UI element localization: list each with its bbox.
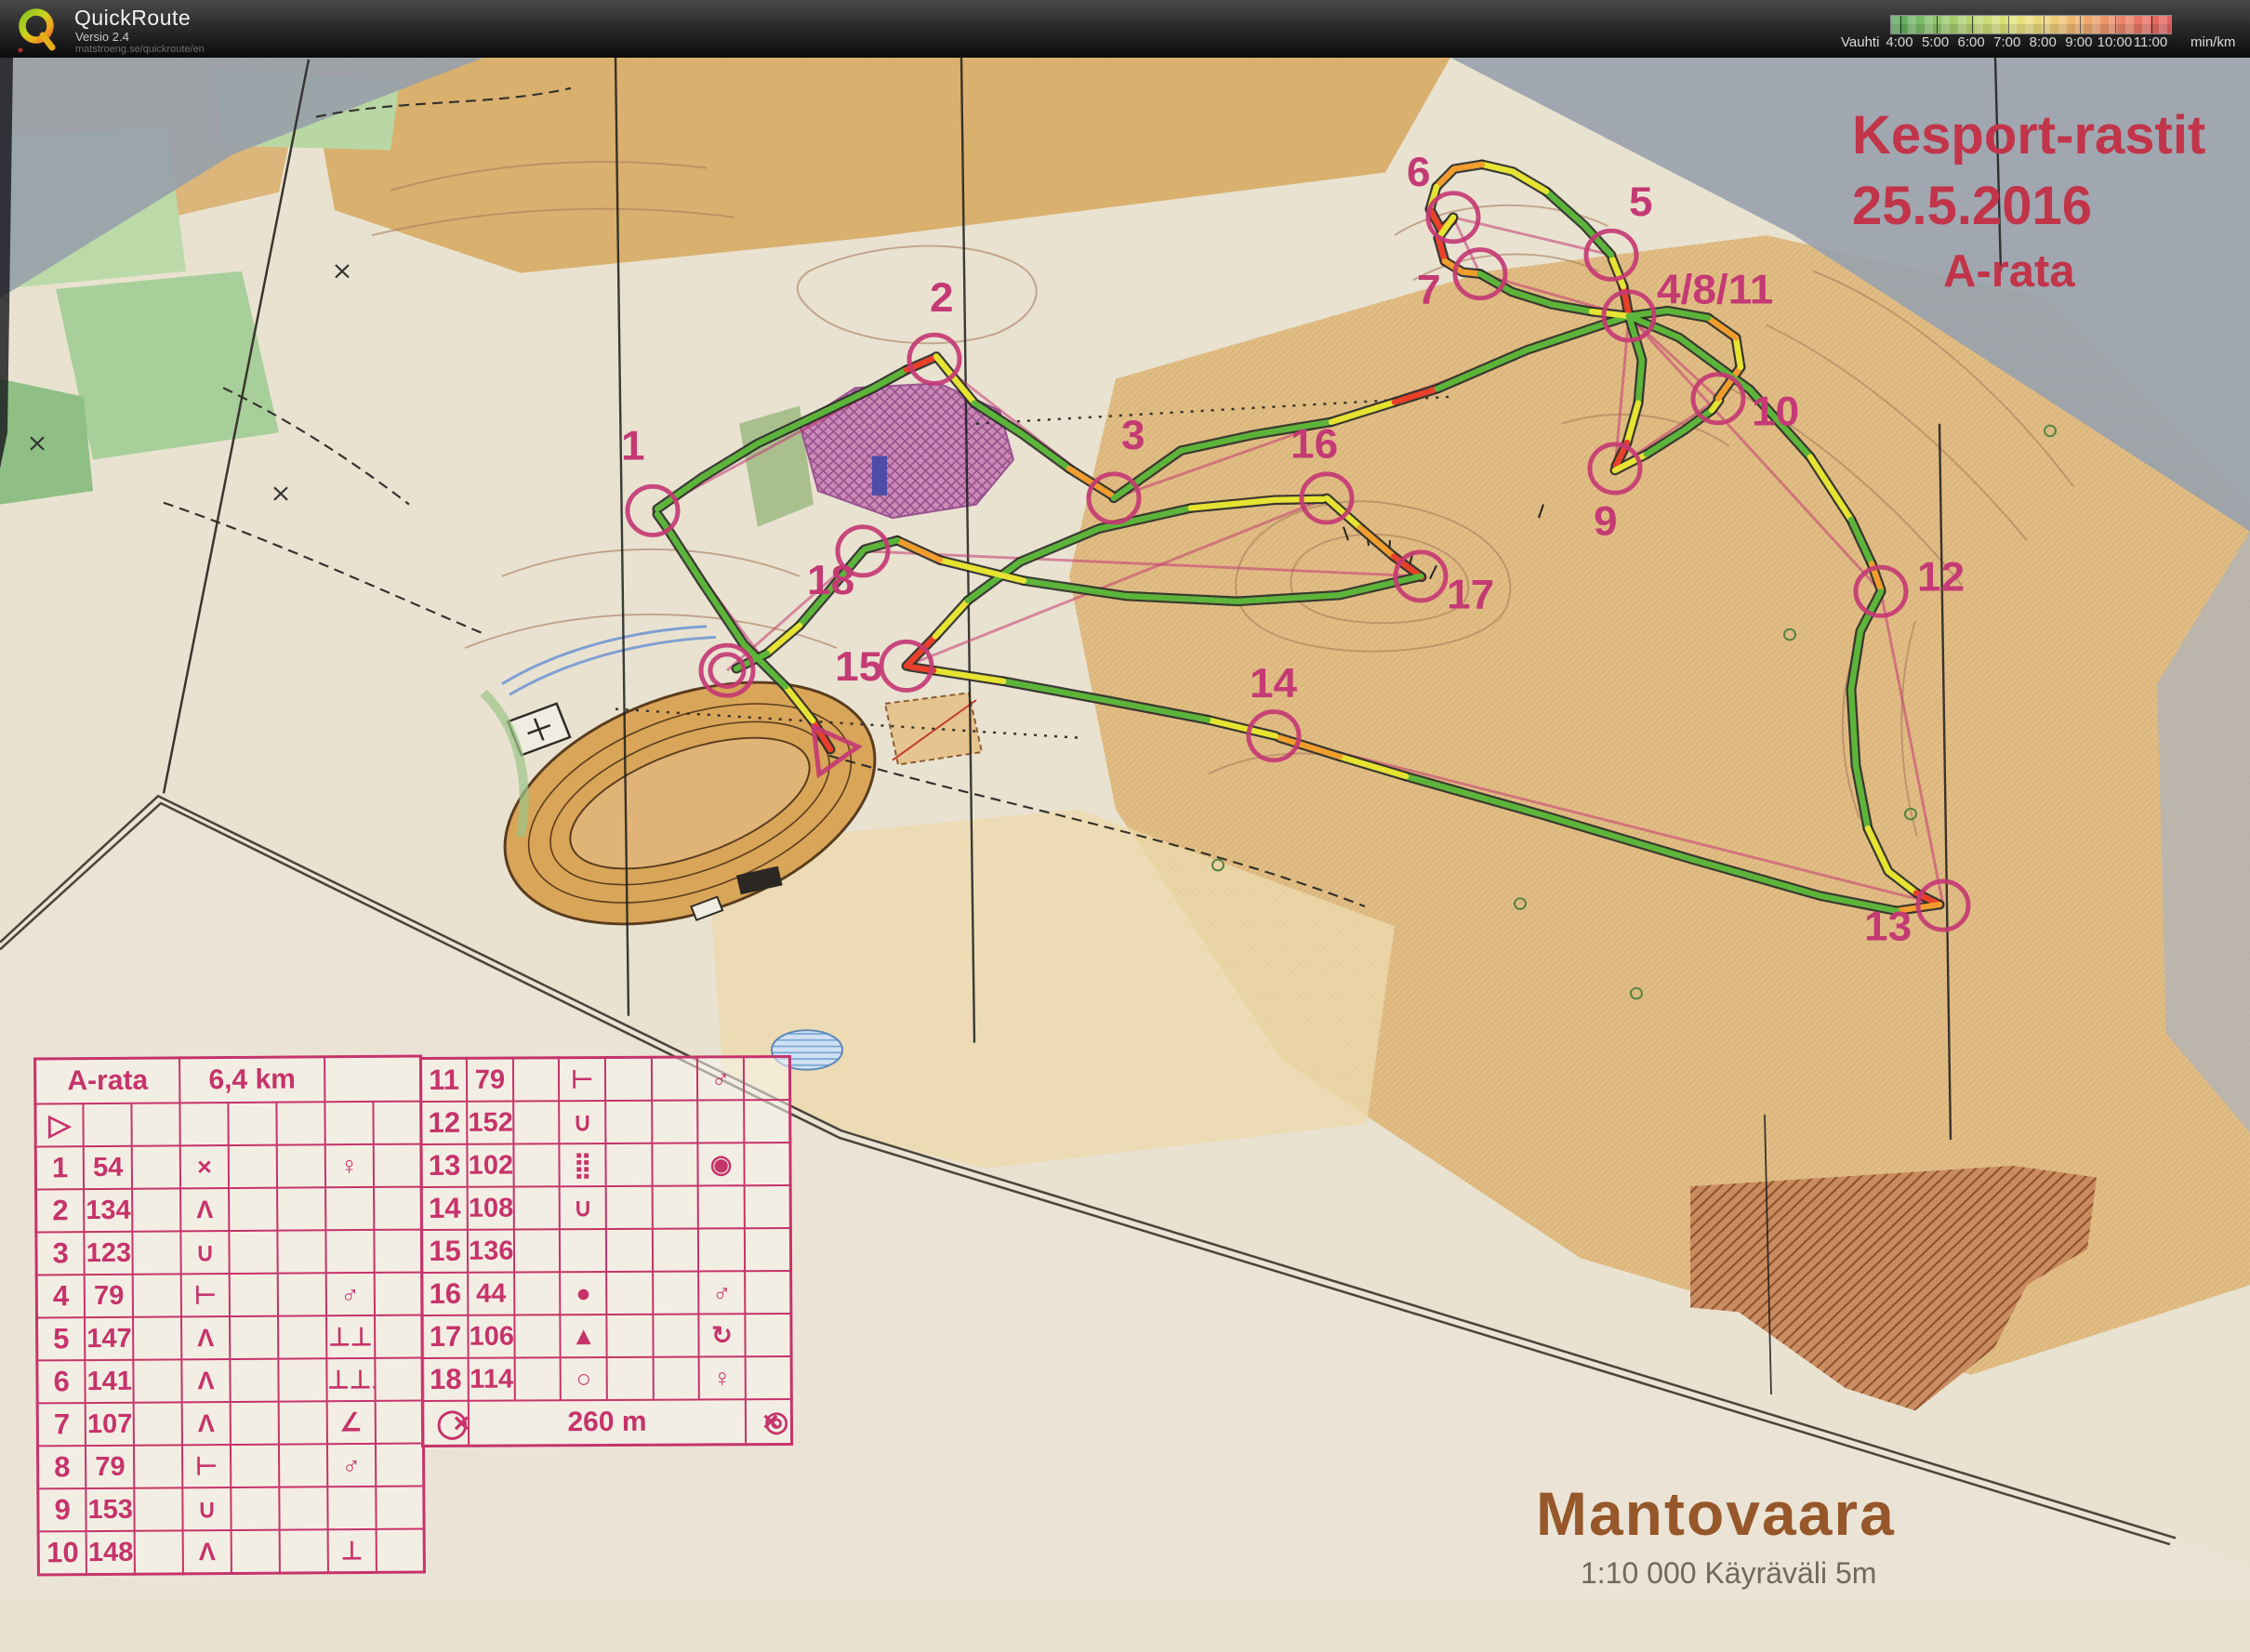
description-cell: 12 bbox=[421, 1102, 468, 1144]
description-cell: ● bbox=[560, 1272, 606, 1315]
description-cell bbox=[514, 1357, 561, 1400]
description-cell: 123 bbox=[85, 1232, 133, 1275]
quickroute-window: QuickRoute Versio 2.4 matstroeng.se/quic… bbox=[0, 0, 2250, 1652]
description-cell bbox=[325, 1187, 374, 1230]
description-cell: 134 bbox=[84, 1189, 132, 1232]
description-cell bbox=[652, 1143, 698, 1185]
description-cell: ♂ bbox=[325, 1273, 374, 1315]
description-cell: 106 bbox=[468, 1315, 514, 1358]
description-cell: ♀ bbox=[699, 1356, 746, 1399]
description-row: 154×♀ bbox=[35, 1144, 421, 1190]
description-cell bbox=[606, 1229, 653, 1272]
description-cell: 8 bbox=[37, 1446, 86, 1488]
description-cell bbox=[278, 1358, 326, 1401]
description-cell: ○ bbox=[561, 1357, 607, 1400]
description-cell: 18 bbox=[422, 1358, 469, 1401]
control-number: 15 bbox=[835, 643, 882, 690]
description-cell bbox=[513, 1058, 560, 1102]
description-cell bbox=[374, 1230, 422, 1273]
description-cell bbox=[375, 1358, 423, 1401]
description-cell bbox=[230, 1274, 278, 1316]
control-number: 12 bbox=[1917, 553, 1965, 600]
description-cell: 15 bbox=[421, 1230, 468, 1273]
control-number: 7 bbox=[1417, 266, 1441, 312]
description-cell: 5 bbox=[37, 1317, 86, 1360]
legend-tick-label: 10:00 bbox=[2098, 34, 2133, 50]
description-cell: ∠ bbox=[326, 1401, 375, 1444]
description-footer-cell: ◯× bbox=[422, 1401, 469, 1447]
control-number: 13 bbox=[1864, 903, 1912, 949]
description-cell: ♂ bbox=[697, 1057, 744, 1101]
app-url: matstroeng.se/quickroute/en bbox=[75, 44, 205, 55]
description-cell bbox=[276, 1102, 324, 1144]
quickroute-logo-icon bbox=[15, 6, 60, 54]
control-number: 16 bbox=[1290, 420, 1338, 467]
control-number: 17 bbox=[1447, 571, 1494, 617]
description-row: 10148Λ⊥ bbox=[38, 1529, 424, 1575]
description-cell bbox=[514, 1229, 561, 1272]
description-cell bbox=[744, 1143, 790, 1185]
description-cell bbox=[376, 1487, 424, 1529]
description-cell: 107 bbox=[86, 1403, 134, 1446]
description-cell bbox=[605, 1101, 652, 1143]
description-cell bbox=[607, 1357, 654, 1400]
description-cell: 13 bbox=[421, 1144, 468, 1187]
pace-legend: Vauhti min/km 4:005:006:007:008:009:0010… bbox=[1839, 0, 2250, 58]
description-row: 479⊢♂ bbox=[36, 1273, 422, 1318]
control-number: 6 bbox=[1407, 149, 1431, 195]
description-cell bbox=[698, 1228, 745, 1271]
description-cell bbox=[133, 1274, 181, 1316]
description-cell bbox=[279, 1444, 327, 1487]
description-cell bbox=[230, 1316, 278, 1359]
description-footer-cell: 260 m bbox=[469, 1399, 746, 1446]
control-number: 5 bbox=[1629, 178, 1653, 225]
description-footer-cell: ×◎ bbox=[746, 1399, 792, 1445]
description-row: 12152∪ bbox=[421, 1100, 790, 1144]
description-cell: 102 bbox=[468, 1144, 514, 1187]
description-cell: ⣿ bbox=[560, 1143, 606, 1186]
description-row: 18114○♀ bbox=[422, 1356, 791, 1401]
legend-tick-label: 6:00 bbox=[1958, 34, 1985, 50]
description-cell bbox=[605, 1057, 652, 1101]
description-cell bbox=[134, 1402, 182, 1445]
description-cell: ▷ bbox=[35, 1104, 84, 1146]
description-cell bbox=[133, 1316, 181, 1359]
description-cell bbox=[605, 1143, 652, 1186]
description-cell: 54 bbox=[84, 1146, 132, 1189]
description-cell: ⊢ bbox=[181, 1274, 230, 1316]
control-number: 4/8/11 bbox=[1657, 266, 1773, 312]
description-row: 13102⣿◉ bbox=[421, 1143, 790, 1187]
legend-tick-line bbox=[1972, 16, 1973, 33]
control-number: 18 bbox=[807, 557, 854, 603]
description-cell bbox=[132, 1145, 180, 1188]
description-cell: 152 bbox=[467, 1102, 513, 1144]
app-title: QuickRoute bbox=[74, 6, 191, 31]
description-row: 879⊢♂ bbox=[37, 1444, 423, 1489]
app-version: Versio 2.4 bbox=[75, 30, 129, 44]
description-cell bbox=[653, 1356, 699, 1399]
legend-tick-line bbox=[1900, 16, 1901, 33]
control-number: 1 bbox=[621, 422, 645, 469]
description-cell bbox=[513, 1186, 560, 1229]
description-cell bbox=[606, 1272, 653, 1315]
description-cell: Λ bbox=[182, 1402, 231, 1445]
description-cell: 2 bbox=[36, 1189, 85, 1232]
description-row: 2134Λ bbox=[36, 1187, 422, 1233]
description-cell: ∪ bbox=[180, 1231, 229, 1274]
description-cell: × bbox=[180, 1145, 229, 1188]
control-number: 10 bbox=[1752, 388, 1799, 434]
description-cell: 6 bbox=[37, 1360, 86, 1403]
description-cell: 10 bbox=[38, 1531, 86, 1575]
legend-tick-line bbox=[2044, 16, 2045, 33]
description-cell bbox=[180, 1103, 229, 1145]
description-cell bbox=[653, 1271, 699, 1314]
description-cell bbox=[277, 1144, 325, 1187]
description-cell: ∪ bbox=[182, 1487, 231, 1530]
legend-tick-label: 11:00 bbox=[2134, 34, 2167, 50]
description-cell bbox=[277, 1230, 325, 1273]
description-row: 7107Λ∠ bbox=[37, 1401, 423, 1447]
description-cell bbox=[652, 1228, 698, 1271]
legend-tick-label: 7:00 bbox=[1993, 34, 2020, 50]
description-cell: ♂ bbox=[327, 1444, 376, 1487]
description-cell bbox=[232, 1530, 280, 1574]
description-cell: Λ bbox=[180, 1188, 229, 1231]
description-cell: ◉ bbox=[698, 1143, 745, 1185]
legend-tick-label: 8:00 bbox=[2030, 34, 2057, 50]
map-canvas[interactable]: 1234/8/1156791012131415161718 Kesport-ra… bbox=[0, 58, 2250, 1652]
description-cell bbox=[745, 1228, 791, 1271]
description-cell bbox=[652, 1185, 698, 1228]
description-row: 1179⊢♂ bbox=[420, 1056, 789, 1102]
description-cell bbox=[376, 1444, 424, 1487]
description-cell bbox=[229, 1231, 277, 1274]
description-cell bbox=[231, 1402, 279, 1445]
description-cell bbox=[697, 1100, 744, 1143]
description-cell bbox=[132, 1103, 180, 1145]
description-cell: 148 bbox=[86, 1531, 135, 1575]
legend-tick-line bbox=[2115, 16, 2116, 33]
description-cell: 14 bbox=[421, 1187, 468, 1230]
description-cell bbox=[133, 1231, 181, 1274]
control-number: 14 bbox=[1250, 660, 1297, 707]
description-cell bbox=[231, 1445, 279, 1487]
description-cell: 3 bbox=[36, 1232, 85, 1275]
description-cell bbox=[374, 1273, 422, 1315]
description-cell bbox=[606, 1315, 653, 1357]
control-number: 9 bbox=[1594, 497, 1618, 544]
description-cell bbox=[373, 1102, 421, 1144]
description-row: 3123∪ bbox=[36, 1230, 422, 1275]
description-header-cell bbox=[324, 1056, 421, 1102]
description-cell: Λ bbox=[181, 1316, 230, 1359]
description-cell: 136 bbox=[468, 1230, 514, 1273]
description-cell: 79 bbox=[85, 1275, 133, 1317]
description-cell bbox=[134, 1359, 182, 1402]
description-row: ▷ bbox=[35, 1102, 421, 1147]
description-cell bbox=[513, 1101, 560, 1143]
description-cell bbox=[374, 1187, 422, 1230]
description-header-cell: A-rata bbox=[35, 1058, 180, 1104]
description-cell bbox=[653, 1314, 699, 1356]
description-row: 6141Λ⊥⊥⊥ bbox=[37, 1358, 423, 1404]
description-cell bbox=[324, 1102, 373, 1144]
description-cell: ⊥⊥⊥ bbox=[326, 1358, 375, 1401]
description-cell bbox=[277, 1187, 325, 1230]
description-cell: 108 bbox=[468, 1187, 514, 1230]
legend-tick-label: 4:00 bbox=[1886, 34, 1912, 50]
description-cell: 79 bbox=[86, 1446, 134, 1488]
description-cell: 1 bbox=[35, 1146, 84, 1189]
description-cell: 16 bbox=[422, 1273, 469, 1315]
description-cell bbox=[84, 1104, 132, 1146]
description-cell bbox=[229, 1145, 277, 1188]
description-cell: 79 bbox=[467, 1058, 513, 1102]
description-cell: ⊢ bbox=[559, 1058, 605, 1102]
description-cell: ♂ bbox=[698, 1271, 745, 1314]
description-cell: Λ bbox=[181, 1359, 230, 1402]
description-cell: ♀ bbox=[324, 1144, 373, 1187]
description-cell bbox=[327, 1487, 376, 1529]
description-cell bbox=[375, 1315, 423, 1358]
description-cell: 11 bbox=[420, 1058, 467, 1102]
description-cell bbox=[134, 1445, 182, 1487]
description-cell bbox=[745, 1185, 791, 1228]
description-cell: ⊢ bbox=[182, 1445, 231, 1487]
description-cell: 44 bbox=[468, 1273, 514, 1315]
description-cell bbox=[229, 1188, 277, 1231]
description-cell bbox=[560, 1229, 606, 1272]
description-cell bbox=[135, 1487, 183, 1530]
description-cell bbox=[279, 1487, 327, 1529]
description-cell bbox=[279, 1529, 327, 1573]
description-header-cell: 6,4 km bbox=[179, 1057, 324, 1104]
description-cell: ⊥ bbox=[327, 1529, 376, 1573]
description-cell bbox=[279, 1401, 327, 1444]
legend-tick-line bbox=[2080, 16, 2081, 33]
description-cell: ▲ bbox=[561, 1315, 607, 1357]
description-row: 15136 bbox=[421, 1228, 790, 1273]
description-cell bbox=[376, 1529, 424, 1573]
legend-tick-label: 5:00 bbox=[1922, 34, 1949, 50]
description-cell: ∪ bbox=[560, 1101, 606, 1143]
event-title-line3: A-rata bbox=[1943, 245, 2075, 297]
description-cell bbox=[652, 1057, 698, 1101]
title-bar: QuickRoute Versio 2.4 matstroeng.se/quic… bbox=[0, 0, 2250, 58]
description-cell bbox=[745, 1314, 791, 1356]
description-cell bbox=[698, 1185, 745, 1228]
control-descriptions-left: A-rata6,4 km▷154×♀2134Λ3123∪479⊢♂5147Λ⊥⊥… bbox=[33, 1055, 426, 1577]
description-cell bbox=[745, 1356, 791, 1399]
description-cell bbox=[744, 1056, 790, 1100]
description-cell bbox=[230, 1359, 278, 1402]
control-number: 3 bbox=[1121, 412, 1145, 458]
pace-legend-label: Vauhti bbox=[1841, 34, 1879, 50]
control-number: 2 bbox=[930, 274, 954, 321]
description-cell: Λ bbox=[183, 1530, 232, 1574]
description-cell bbox=[744, 1100, 790, 1143]
description-cell: 7 bbox=[37, 1403, 86, 1446]
description-row: 1644●♂ bbox=[422, 1271, 791, 1315]
description-cell bbox=[652, 1100, 698, 1143]
pace-legend-unit: min/km bbox=[2190, 34, 2235, 50]
map-scale: 1:10 000 Käyräväli 5m bbox=[1581, 1556, 1876, 1591]
description-cell bbox=[278, 1273, 326, 1315]
description-cell bbox=[228, 1103, 276, 1145]
description-cell: 4 bbox=[36, 1275, 85, 1317]
description-cell bbox=[606, 1186, 653, 1229]
description-row: 14108∪ bbox=[421, 1185, 790, 1230]
description-cell bbox=[132, 1188, 180, 1231]
description-row: 9153∪ bbox=[38, 1487, 424, 1532]
description-cell: 114 bbox=[469, 1358, 515, 1401]
description-cell bbox=[278, 1315, 326, 1358]
description-cell: 17 bbox=[422, 1315, 469, 1358]
description-cell bbox=[325, 1230, 374, 1273]
event-title-line2: 25.5.2016 bbox=[1852, 175, 2092, 237]
map-name: Mantovaara bbox=[1536, 1478, 1896, 1549]
description-cell: ↻ bbox=[699, 1314, 746, 1356]
description-cell: 141 bbox=[86, 1360, 134, 1403]
legend-tick-line bbox=[2008, 16, 2009, 33]
description-cell bbox=[373, 1144, 421, 1187]
description-cell bbox=[135, 1530, 183, 1574]
control-descriptions-right: 1179⊢♂12152∪13102⣿◉14108∪151361644●♂1710… bbox=[419, 1055, 793, 1447]
description-cell: ∪ bbox=[560, 1186, 606, 1229]
legend-tick-line bbox=[1937, 16, 1938, 33]
description-row: 17106▲↻ bbox=[422, 1314, 791, 1358]
description-cell: 9 bbox=[38, 1488, 86, 1531]
legend-tick-label: 9:00 bbox=[2065, 34, 2092, 50]
description-cell: 153 bbox=[86, 1488, 135, 1531]
description-cell: ⊥⊥ bbox=[326, 1315, 375, 1358]
legend-tick-line bbox=[2151, 16, 2152, 33]
description-cell: 147 bbox=[85, 1317, 133, 1360]
description-cell bbox=[514, 1272, 561, 1315]
description-row: 5147Λ⊥⊥ bbox=[37, 1315, 423, 1361]
description-cell bbox=[745, 1271, 791, 1314]
description-cell bbox=[231, 1487, 279, 1530]
description-cell bbox=[514, 1315, 561, 1357]
event-title-line1: Kesport-rastit bbox=[1852, 104, 2205, 166]
pace-gradient-bar[interactable] bbox=[1890, 15, 2172, 34]
description-cell bbox=[375, 1401, 423, 1444]
description-cell bbox=[513, 1143, 560, 1186]
